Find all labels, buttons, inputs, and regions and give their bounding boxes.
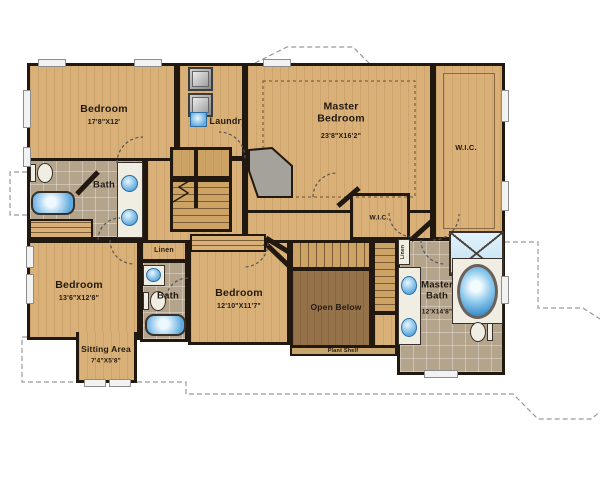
window [501, 90, 509, 122]
window [501, 181, 509, 211]
window [134, 59, 162, 67]
staircase-right-run [372, 240, 398, 314]
label-bedroom-top-left-dims: 17'8"X12' [88, 119, 121, 127]
toilet [470, 322, 493, 342]
window [109, 379, 131, 387]
sink [121, 175, 138, 192]
label-bedroom-bottom-left: Bedroom [55, 280, 103, 292]
window [424, 370, 458, 378]
sink [146, 268, 161, 282]
closet-bedroom-middle [190, 234, 266, 252]
roofline-bottom-left [22, 337, 75, 382]
sink [401, 318, 417, 337]
label-linen-hall: Linen [154, 247, 174, 255]
sink [121, 209, 138, 226]
label-bedroom-bottom-left-dims: 13'6"X12'8" [59, 295, 99, 303]
roofline-bottom [137, 382, 600, 419]
label-master-bath-dims: 12'X14'8" [422, 308, 452, 315]
landing-stub [372, 312, 398, 348]
label-master-bath: Master Bath [414, 280, 460, 301]
label-plant-shelf: Plant Shelf [328, 348, 359, 354]
staircase-landing [170, 147, 232, 179]
label-wic-master: W.I.C. [455, 144, 477, 152]
label-bedroom-middle-dims: 12'10"X11'7" [217, 303, 261, 311]
washer [188, 67, 213, 91]
label-open-below: Open Below [310, 303, 361, 313]
label-bedroom-middle: Bedroom [215, 288, 263, 300]
vanity-counter [117, 162, 143, 238]
label-bedroom-top-left: Bedroom [80, 104, 128, 116]
label-master-bedroom: Master Bedroom [309, 101, 373, 125]
roofline-left-bump [10, 172, 27, 215]
roofline-right [505, 242, 600, 319]
bathtub [31, 191, 75, 215]
bathtub [145, 314, 186, 336]
window [23, 90, 31, 128]
label-sitting-area: Sitting Area [81, 345, 131, 355]
floor-plan: Bedroom 17'8"X12' Laundry Master Bedroom… [0, 0, 600, 480]
label-bath-middle: Bath [157, 292, 179, 303]
soaking-tub [457, 264, 498, 319]
window [23, 147, 31, 167]
label-bath-upper: Bath [93, 181, 115, 192]
label-master-bedroom-dims: 23'8"X16'2" [321, 133, 361, 141]
window [84, 379, 106, 387]
staircase-upper-run [290, 240, 372, 270]
window [501, 276, 509, 304]
label-laundry: Laundry [210, 116, 247, 126]
label-linen-master: Linen [401, 245, 407, 259]
toilet [30, 163, 53, 183]
window [26, 274, 34, 304]
window [38, 59, 66, 67]
closet-left [29, 219, 93, 239]
window [26, 246, 34, 268]
laundry-sink [190, 112, 207, 127]
label-sitting-area-dims: 7'4"X5'8" [91, 357, 121, 364]
staircase-main [170, 179, 232, 232]
label-wic-hall: W.I.C. [370, 214, 389, 221]
window [263, 59, 291, 67]
